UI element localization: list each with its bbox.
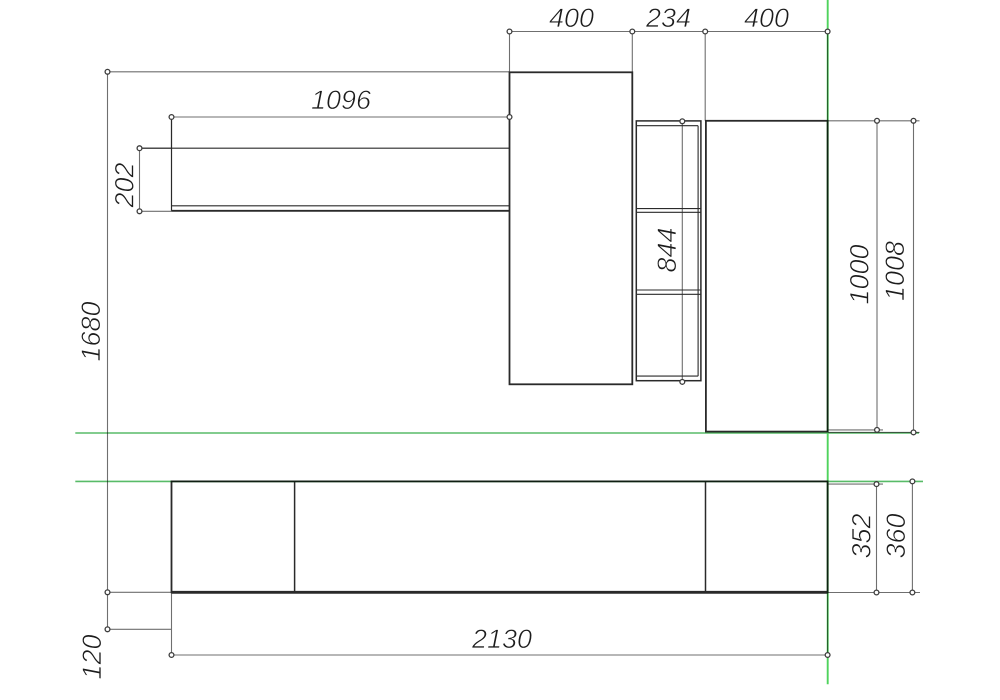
svg-text:844: 844 (652, 227, 682, 272)
svg-text:360: 360 (881, 513, 911, 558)
svg-text:234: 234 (645, 3, 691, 33)
svg-text:400: 400 (744, 3, 789, 33)
svg-text:1680: 1680 (76, 301, 106, 361)
svg-text:2130: 2130 (471, 624, 532, 654)
svg-text:202: 202 (110, 162, 140, 208)
svg-text:400: 400 (549, 3, 594, 33)
svg-text:1096: 1096 (311, 85, 372, 115)
svg-text:120: 120 (77, 634, 107, 679)
svg-text:352: 352 (847, 513, 877, 558)
svg-text:1000: 1000 (845, 244, 875, 304)
svg-text:1008: 1008 (880, 241, 910, 301)
